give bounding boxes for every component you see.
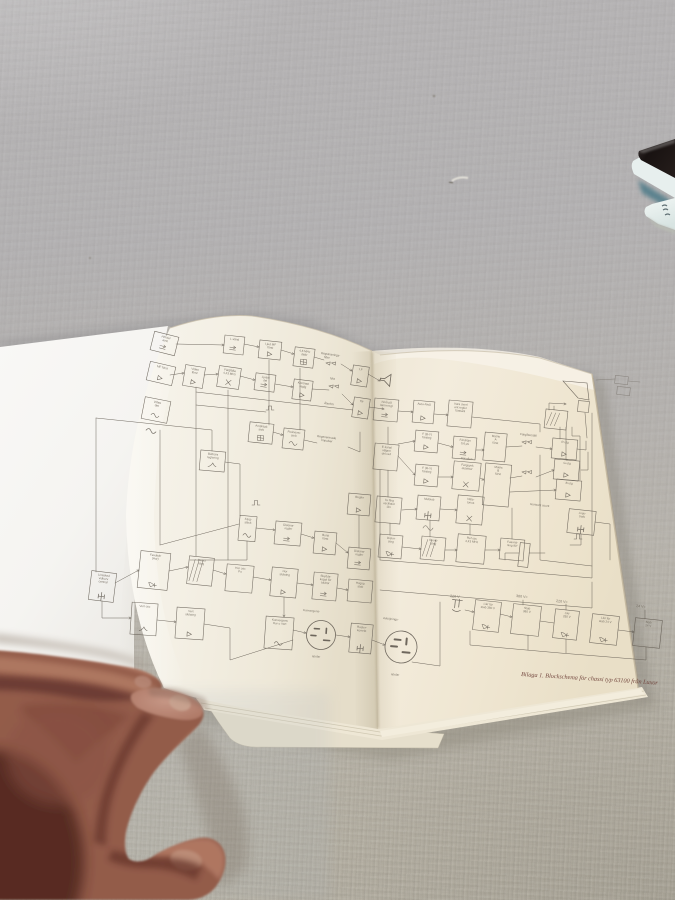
svg-text:Regler: Regler — [355, 495, 364, 500]
svg-text:LF: LF — [359, 367, 363, 371]
svg-text:reglg: reglg — [299, 384, 306, 389]
svg-text:bildrör: bildrör — [321, 580, 330, 585]
svg-text:försteg: försteg — [422, 469, 432, 474]
svg-text:slutsteg: slutsteg — [185, 612, 196, 617]
svg-text:först: först — [492, 441, 498, 446]
svg-text:regler: regler — [355, 552, 363, 557]
svg-text:först: först — [267, 345, 273, 350]
svg-text:spolar: spolar — [312, 654, 320, 659]
svg-text:tonus: tonus — [467, 500, 475, 505]
svg-text:Vert osc: Vert osc — [139, 604, 151, 609]
svg-text:först: först — [495, 472, 501, 477]
svg-text:diskr: diskr — [301, 352, 308, 357]
svg-text:Po: Po — [238, 569, 242, 573]
svg-text:släck: släck — [244, 520, 252, 525]
svg-text:korrekt: korrekt — [357, 628, 367, 633]
svg-text:för: för — [360, 399, 364, 403]
svg-text:steg: steg — [388, 539, 394, 544]
svg-text:G utg: G utg — [563, 461, 571, 466]
svg-text:spolar: spolar — [391, 672, 400, 677]
svg-text:250 V: 250 V — [563, 614, 571, 619]
svg-text:steg: steg — [198, 561, 204, 566]
svg-text:B utg: B utg — [565, 481, 573, 486]
svg-text:R utg: R utg — [561, 440, 569, 445]
svg-text:24 V: 24 V — [645, 623, 652, 628]
svg-text:regler: regler — [284, 526, 292, 531]
svg-text:sieb: sieb — [258, 427, 264, 432]
svg-text:tyta: tyta — [330, 376, 336, 381]
svg-text:filter: filter — [324, 355, 330, 360]
svg-text:380 V: 380 V — [523, 609, 531, 614]
svg-text:steg: steg — [430, 541, 436, 546]
svg-text:trafo: trafo — [579, 514, 586, 519]
svg-text:stab: stab — [357, 584, 363, 589]
svg-text:0,6 µs: 0,6 µs — [461, 441, 470, 446]
svg-text:försteg: försteg — [422, 435, 432, 440]
svg-text:först: först — [322, 536, 328, 541]
svg-text:del rad: del rad — [382, 451, 392, 456]
svg-text:län: län — [387, 505, 392, 509]
svg-text:sieb: sieb — [291, 433, 297, 438]
svg-text:(Hor): (Hor) — [152, 556, 159, 561]
